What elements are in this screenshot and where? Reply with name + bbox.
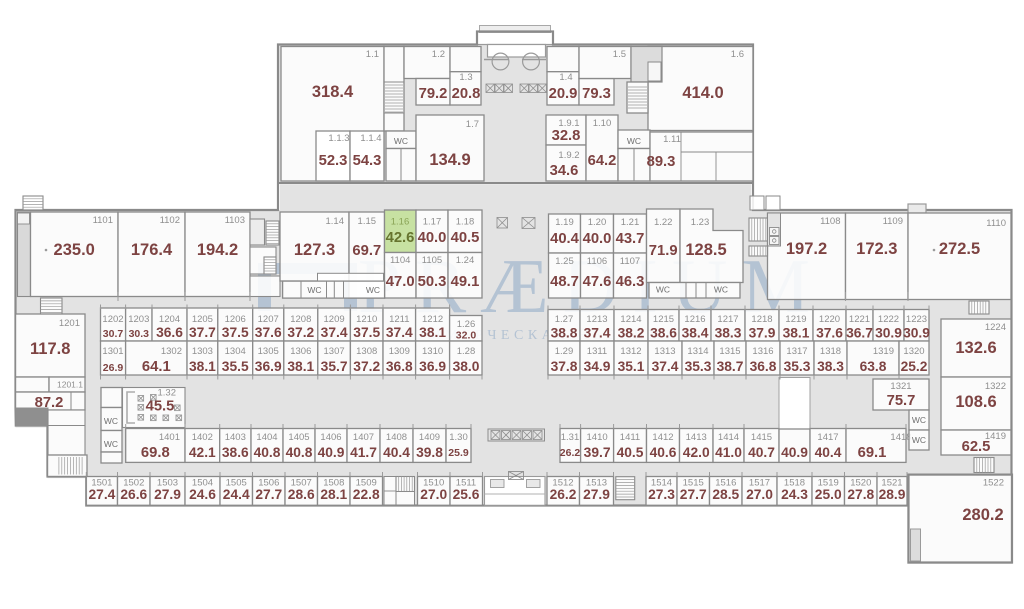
svg-text:1.10: 1.10: [593, 118, 612, 129]
svg-text:1211: 1211: [389, 314, 409, 325]
svg-text:22.8: 22.8: [353, 487, 380, 502]
svg-text:1221: 1221: [849, 314, 870, 325]
svg-text:35.3: 35.3: [784, 359, 811, 374]
svg-text:176.4: 176.4: [131, 241, 173, 259]
svg-text:69.7: 69.7: [352, 243, 381, 259]
svg-text:1.27: 1.27: [555, 314, 574, 325]
svg-text:69.1: 69.1: [858, 445, 887, 461]
svg-text:1109: 1109: [883, 216, 903, 227]
svg-text:WC: WC: [912, 415, 926, 425]
svg-text:37.4: 37.4: [652, 359, 679, 374]
svg-text:52.3: 52.3: [319, 153, 348, 169]
svg-text:1.29: 1.29: [555, 346, 574, 357]
svg-text:54.3: 54.3: [353, 153, 382, 169]
svg-text:37.5: 37.5: [222, 325, 249, 340]
svg-text:47.6: 47.6: [583, 274, 612, 290]
svg-text:WC: WC: [627, 136, 641, 146]
svg-text:38.3: 38.3: [715, 326, 742, 341]
svg-text:46.3: 46.3: [616, 274, 645, 290]
svg-text:1312: 1312: [620, 346, 641, 357]
svg-text:1213: 1213: [586, 314, 607, 325]
svg-text:37.2: 37.2: [287, 325, 314, 340]
svg-text:34.6: 34.6: [550, 163, 579, 179]
svg-text:25.2: 25.2: [901, 359, 928, 374]
svg-text:48.7: 48.7: [550, 274, 579, 290]
svg-text:30.9: 30.9: [875, 326, 902, 341]
svg-text:26.9: 26.9: [103, 362, 124, 374]
svg-text:1.1.4: 1.1.4: [360, 133, 381, 144]
svg-text:1224: 1224: [985, 322, 1006, 333]
svg-text:89.3: 89.3: [647, 154, 676, 170]
svg-text:280.2: 280.2: [962, 506, 1003, 524]
svg-text:1209: 1209: [324, 314, 345, 325]
svg-text:1307: 1307: [324, 346, 345, 357]
svg-text:42.6: 42.6: [386, 230, 415, 246]
svg-text:34.9: 34.9: [584, 359, 611, 374]
svg-text:45.5: 45.5: [146, 399, 175, 415]
svg-text:1202: 1202: [102, 314, 123, 325]
svg-text:1.6: 1.6: [731, 49, 744, 60]
svg-text:1101: 1101: [93, 215, 113, 226]
svg-text:26.2: 26.2: [560, 447, 581, 459]
svg-text:42.1: 42.1: [189, 445, 216, 460]
svg-text:28.9: 28.9: [879, 487, 906, 502]
svg-text:1.32: 1.32: [158, 388, 177, 399]
svg-text:172.3: 172.3: [856, 240, 897, 258]
svg-text:1404: 1404: [256, 432, 277, 443]
svg-text:117.8: 117.8: [30, 340, 70, 358]
svg-text:27.8: 27.8: [847, 487, 874, 502]
svg-text:1.20: 1.20: [588, 217, 607, 228]
svg-text:36.8: 36.8: [386, 359, 413, 374]
svg-text:1104: 1104: [390, 255, 410, 266]
svg-text:1201: 1201: [59, 318, 80, 329]
svg-text:63.8: 63.8: [860, 359, 887, 374]
svg-text:79.2: 79.2: [419, 86, 448, 102]
svg-text:1222: 1222: [878, 314, 899, 325]
svg-text:35.3: 35.3: [685, 359, 712, 374]
svg-text:1319: 1319: [873, 346, 894, 357]
svg-text:28.6: 28.6: [288, 487, 315, 502]
svg-text:1102: 1102: [160, 215, 180, 226]
svg-text:75.7: 75.7: [887, 393, 916, 409]
svg-text:1406: 1406: [320, 432, 341, 443]
svg-text:1322: 1322: [985, 381, 1006, 392]
svg-text:1215: 1215: [653, 314, 674, 325]
svg-text:37.7: 37.7: [189, 325, 216, 340]
svg-text:1.14: 1.14: [326, 216, 345, 227]
svg-text:41.0: 41.0: [715, 445, 742, 460]
svg-text:1207: 1207: [258, 314, 279, 325]
svg-text:27.3: 27.3: [648, 487, 675, 502]
svg-text:38.6: 38.6: [222, 445, 249, 460]
svg-text:40.4: 40.4: [550, 231, 580, 247]
svg-text:1409: 1409: [419, 432, 440, 443]
svg-text:1405: 1405: [288, 432, 309, 443]
svg-text:1318: 1318: [820, 346, 841, 357]
svg-text:1.16: 1.16: [391, 217, 410, 228]
svg-text:20.8: 20.8: [452, 86, 481, 102]
svg-text:35.7: 35.7: [321, 359, 348, 374]
svg-text:1403: 1403: [225, 432, 246, 443]
svg-text:1218: 1218: [751, 314, 772, 325]
svg-text:1204: 1204: [159, 314, 180, 325]
svg-text:414.0: 414.0: [682, 84, 723, 102]
svg-text:1305: 1305: [258, 346, 279, 357]
svg-text:32.8: 32.8: [552, 128, 581, 144]
svg-text:26.2: 26.2: [550, 487, 577, 502]
svg-text:1306: 1306: [290, 346, 311, 357]
svg-text:40.7: 40.7: [748, 445, 775, 460]
svg-text:28.1: 28.1: [320, 487, 347, 502]
svg-text:37.4: 37.4: [321, 325, 348, 340]
svg-text:1.26: 1.26: [457, 319, 476, 330]
svg-text:1.30: 1.30: [449, 432, 468, 443]
svg-text:50.3: 50.3: [418, 274, 447, 290]
svg-text:36.9: 36.9: [255, 359, 282, 374]
svg-text:36.9: 36.9: [419, 359, 446, 374]
svg-text:WC: WC: [307, 285, 321, 295]
svg-text:38.4: 38.4: [682, 326, 709, 341]
svg-text:1220: 1220: [819, 314, 840, 325]
svg-text:1522: 1522: [983, 478, 1004, 489]
svg-text:39.7: 39.7: [584, 445, 611, 460]
svg-text:1304: 1304: [225, 346, 246, 357]
svg-text:1201.1: 1201.1: [57, 380, 83, 390]
svg-text:WC: WC: [104, 416, 118, 426]
svg-text:40.8: 40.8: [254, 445, 281, 460]
svg-text:1223: 1223: [906, 314, 927, 325]
svg-text:40.4: 40.4: [815, 445, 842, 460]
svg-text:40.5: 40.5: [617, 445, 644, 460]
svg-text:1.9.2: 1.9.2: [558, 150, 579, 161]
svg-text:134.9: 134.9: [429, 151, 470, 169]
svg-text:79.3: 79.3: [582, 86, 611, 102]
svg-text:24.6: 24.6: [189, 487, 216, 502]
svg-text:194.2: 194.2: [197, 241, 238, 259]
svg-text:1302: 1302: [161, 346, 182, 357]
svg-text:1410: 1410: [587, 432, 608, 443]
svg-text:1.31: 1.31: [561, 432, 580, 443]
svg-text:1.19: 1.19: [555, 217, 574, 228]
svg-text:1.17: 1.17: [423, 217, 442, 228]
svg-text:47.0: 47.0: [386, 274, 415, 290]
svg-text:1110: 1110: [986, 218, 1006, 229]
svg-text:1415: 1415: [751, 432, 772, 443]
svg-text:40.6: 40.6: [650, 445, 677, 460]
svg-text:1.18: 1.18: [456, 217, 475, 228]
svg-text:1.22: 1.22: [654, 217, 673, 228]
svg-text:1314: 1314: [687, 346, 708, 357]
svg-text:25.6: 25.6: [453, 487, 480, 502]
svg-text:127.3: 127.3: [294, 241, 335, 259]
svg-text:1103: 1103: [225, 215, 245, 226]
svg-text:1313: 1313: [654, 346, 675, 357]
svg-text:38.1: 38.1: [287, 359, 314, 374]
svg-text:1206: 1206: [225, 314, 246, 325]
svg-text:38.1: 38.1: [419, 325, 446, 340]
svg-text:1308: 1308: [356, 346, 377, 357]
svg-text:37.4: 37.4: [584, 326, 611, 341]
svg-text:1315: 1315: [719, 346, 740, 357]
svg-text:49.1: 49.1: [451, 274, 480, 290]
svg-text:41.7: 41.7: [350, 445, 377, 460]
svg-text:38.8: 38.8: [551, 326, 578, 341]
svg-text:1.7: 1.7: [466, 119, 479, 130]
svg-text:27.0: 27.0: [746, 487, 773, 502]
svg-text:WC: WC: [366, 285, 380, 295]
svg-text:25.9: 25.9: [448, 447, 469, 459]
svg-text:37.4: 37.4: [386, 325, 413, 340]
svg-text:235.0: 235.0: [54, 241, 95, 259]
svg-text:37.6: 37.6: [816, 326, 843, 341]
svg-text:WC: WC: [394, 136, 408, 146]
svg-text:1219: 1219: [785, 314, 806, 325]
svg-text:1107: 1107: [620, 256, 640, 267]
svg-text:40.5: 40.5: [451, 230, 480, 246]
svg-text:132.6: 132.6: [955, 339, 996, 357]
svg-text:38.2: 38.2: [618, 326, 645, 341]
svg-text:32.0: 32.0: [456, 330, 477, 342]
svg-text:36.6: 36.6: [156, 325, 183, 340]
svg-text:43.7: 43.7: [616, 231, 645, 247]
svg-text:35.5: 35.5: [222, 359, 249, 374]
svg-text:38.0: 38.0: [453, 359, 480, 374]
svg-text:38.7: 38.7: [717, 359, 744, 374]
svg-text:40.9: 40.9: [318, 445, 345, 460]
svg-text:64.1: 64.1: [142, 359, 171, 375]
svg-text:40.0: 40.0: [418, 230, 447, 246]
svg-text:1217: 1217: [717, 314, 738, 325]
svg-text:1.2: 1.2: [432, 49, 445, 60]
svg-text:27.0: 27.0: [420, 487, 447, 502]
svg-text:38.3: 38.3: [817, 359, 844, 374]
svg-text:1216: 1216: [684, 314, 705, 325]
svg-text:272.5: 272.5: [939, 240, 980, 258]
svg-text:30.9: 30.9: [903, 326, 930, 341]
svg-text:1.15: 1.15: [358, 216, 377, 227]
svg-text:26.6: 26.6: [120, 487, 147, 502]
svg-text:40.8: 40.8: [286, 445, 313, 460]
svg-text:36.7: 36.7: [846, 326, 873, 341]
svg-text:1411: 1411: [620, 432, 640, 443]
svg-text:1320: 1320: [903, 346, 924, 357]
svg-text:69.8: 69.8: [141, 445, 170, 461]
svg-text:128.5: 128.5: [685, 241, 726, 259]
svg-text:40.4: 40.4: [383, 445, 410, 460]
svg-text:108.6: 108.6: [955, 393, 996, 411]
svg-text:27.4: 27.4: [88, 487, 115, 502]
svg-text:27.7: 27.7: [255, 487, 282, 502]
svg-text:25.0: 25.0: [815, 487, 842, 502]
svg-text:1321: 1321: [890, 381, 911, 392]
svg-text:1108: 1108: [820, 216, 840, 227]
svg-text:1316: 1316: [752, 346, 773, 357]
svg-text:1.24: 1.24: [456, 255, 475, 266]
svg-text:1.25: 1.25: [555, 256, 574, 267]
svg-text:1317: 1317: [786, 346, 807, 357]
svg-text:WC: WC: [104, 439, 118, 449]
svg-text:38.1: 38.1: [783, 326, 810, 341]
svg-text:42.0: 42.0: [683, 445, 710, 460]
svg-text:37.5: 37.5: [353, 325, 380, 340]
svg-text:27.7: 27.7: [680, 487, 707, 502]
svg-text:197.2: 197.2: [786, 240, 827, 258]
svg-text:1413: 1413: [686, 432, 707, 443]
svg-text:30.7: 30.7: [103, 328, 124, 340]
svg-text:64.2: 64.2: [588, 153, 617, 169]
svg-text:1.5: 1.5: [613, 49, 626, 60]
svg-text:37.9: 37.9: [749, 326, 776, 341]
svg-text:318.4: 318.4: [312, 83, 354, 101]
svg-text:36.8: 36.8: [750, 359, 777, 374]
svg-text:1311: 1311: [587, 346, 607, 357]
svg-text:24.4: 24.4: [223, 487, 250, 502]
svg-text:30.3: 30.3: [129, 328, 150, 340]
svg-text:1401: 1401: [159, 432, 180, 443]
svg-text:1.28: 1.28: [457, 346, 476, 357]
svg-text:1412: 1412: [652, 432, 673, 443]
svg-text:27.9: 27.9: [154, 487, 181, 502]
svg-text:1214: 1214: [620, 314, 641, 325]
svg-text:1414: 1414: [718, 432, 739, 443]
svg-text:40.0: 40.0: [583, 231, 612, 247]
svg-text:37.2: 37.2: [353, 359, 380, 374]
svg-text:38.6: 38.6: [650, 326, 677, 341]
svg-text:1408: 1408: [386, 432, 407, 443]
svg-text:1205: 1205: [192, 314, 213, 325]
svg-text:1.3: 1.3: [459, 72, 472, 83]
svg-text:40.9: 40.9: [781, 445, 808, 460]
svg-text:1212: 1212: [422, 314, 443, 325]
svg-text:28.5: 28.5: [712, 487, 739, 502]
svg-text:20.9: 20.9: [549, 86, 578, 102]
svg-text:62.5: 62.5: [962, 439, 991, 455]
svg-text:27.9: 27.9: [583, 487, 610, 502]
svg-text:38.1: 38.1: [189, 359, 216, 374]
svg-text:1303: 1303: [192, 346, 213, 357]
svg-text:1407: 1407: [353, 432, 374, 443]
svg-text:1203: 1203: [128, 314, 149, 325]
svg-text:1.4: 1.4: [559, 72, 572, 83]
svg-text:1106: 1106: [587, 256, 607, 267]
svg-text:1.1.3: 1.1.3: [328, 133, 349, 144]
svg-text:39.8: 39.8: [416, 445, 443, 460]
svg-text:1301: 1301: [102, 346, 123, 357]
svg-text:WC: WC: [714, 285, 728, 295]
svg-text:1208: 1208: [290, 314, 311, 325]
svg-text:71.9: 71.9: [649, 243, 678, 259]
svg-text:1105: 1105: [422, 255, 442, 266]
svg-text:1.11: 1.11: [663, 134, 681, 145]
svg-text:35.1: 35.1: [618, 359, 645, 374]
svg-text:1402: 1402: [192, 432, 213, 443]
svg-text:WC: WC: [656, 285, 670, 295]
svg-text:1417: 1417: [817, 432, 838, 443]
svg-text:1.1: 1.1: [366, 49, 379, 60]
svg-text:37.8: 37.8: [551, 359, 578, 374]
svg-text:1309: 1309: [389, 346, 410, 357]
svg-text:1.21: 1.21: [621, 217, 640, 228]
svg-text:24.3: 24.3: [781, 487, 808, 502]
svg-text:37.6: 37.6: [255, 325, 282, 340]
svg-text:WC: WC: [912, 435, 926, 445]
svg-text:1310: 1310: [422, 346, 443, 357]
svg-text:1.23: 1.23: [691, 217, 710, 228]
svg-text:1210: 1210: [356, 314, 377, 325]
